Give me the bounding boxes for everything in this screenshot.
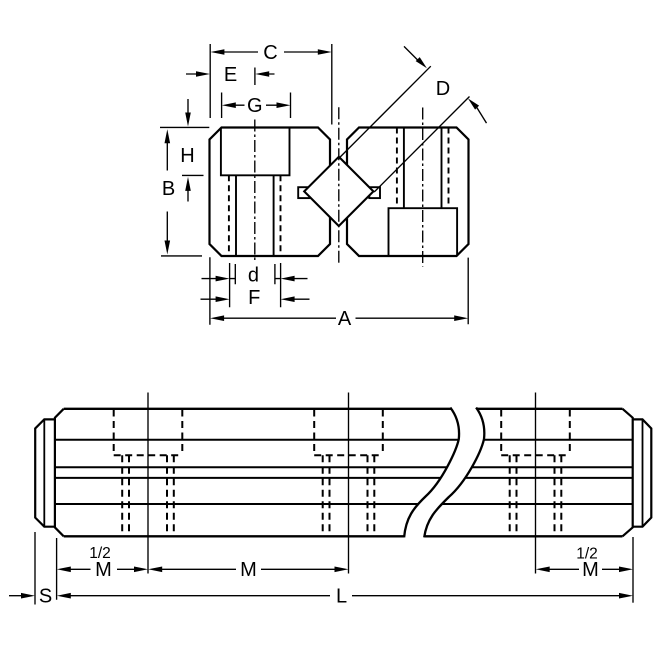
svg-text:d: d bbox=[248, 264, 259, 286]
svg-text:S: S bbox=[39, 586, 52, 608]
svg-text:A: A bbox=[338, 308, 352, 330]
svg-text:M: M bbox=[95, 559, 112, 581]
svg-text:E: E bbox=[224, 64, 237, 86]
svg-text:1/2: 1/2 bbox=[576, 545, 598, 562]
svg-text:B: B bbox=[162, 178, 175, 200]
svg-text:G: G bbox=[247, 95, 263, 117]
svg-text:F: F bbox=[248, 287, 260, 309]
svg-text:L: L bbox=[336, 586, 347, 608]
svg-text:D: D bbox=[436, 78, 450, 100]
svg-text:1/2: 1/2 bbox=[89, 545, 111, 562]
svg-text:H: H bbox=[180, 145, 194, 167]
svg-text:C: C bbox=[263, 42, 277, 64]
svg-text:M: M bbox=[240, 559, 257, 581]
